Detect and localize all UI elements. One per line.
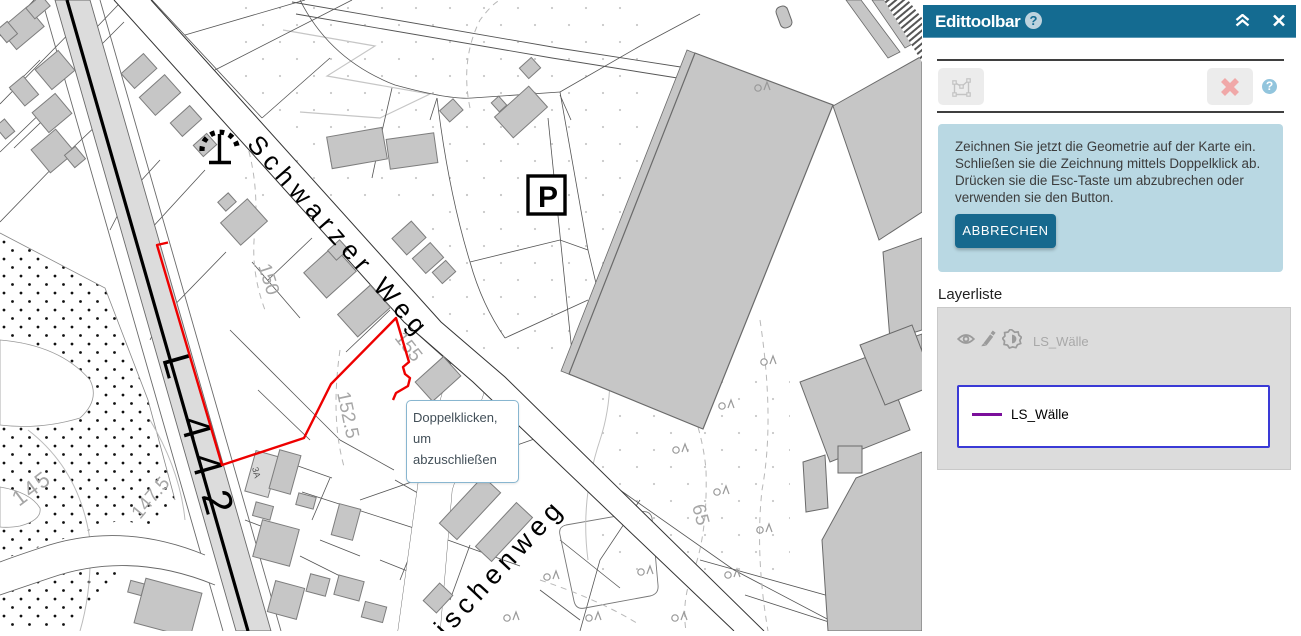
svg-text:P: P — [538, 181, 558, 214]
